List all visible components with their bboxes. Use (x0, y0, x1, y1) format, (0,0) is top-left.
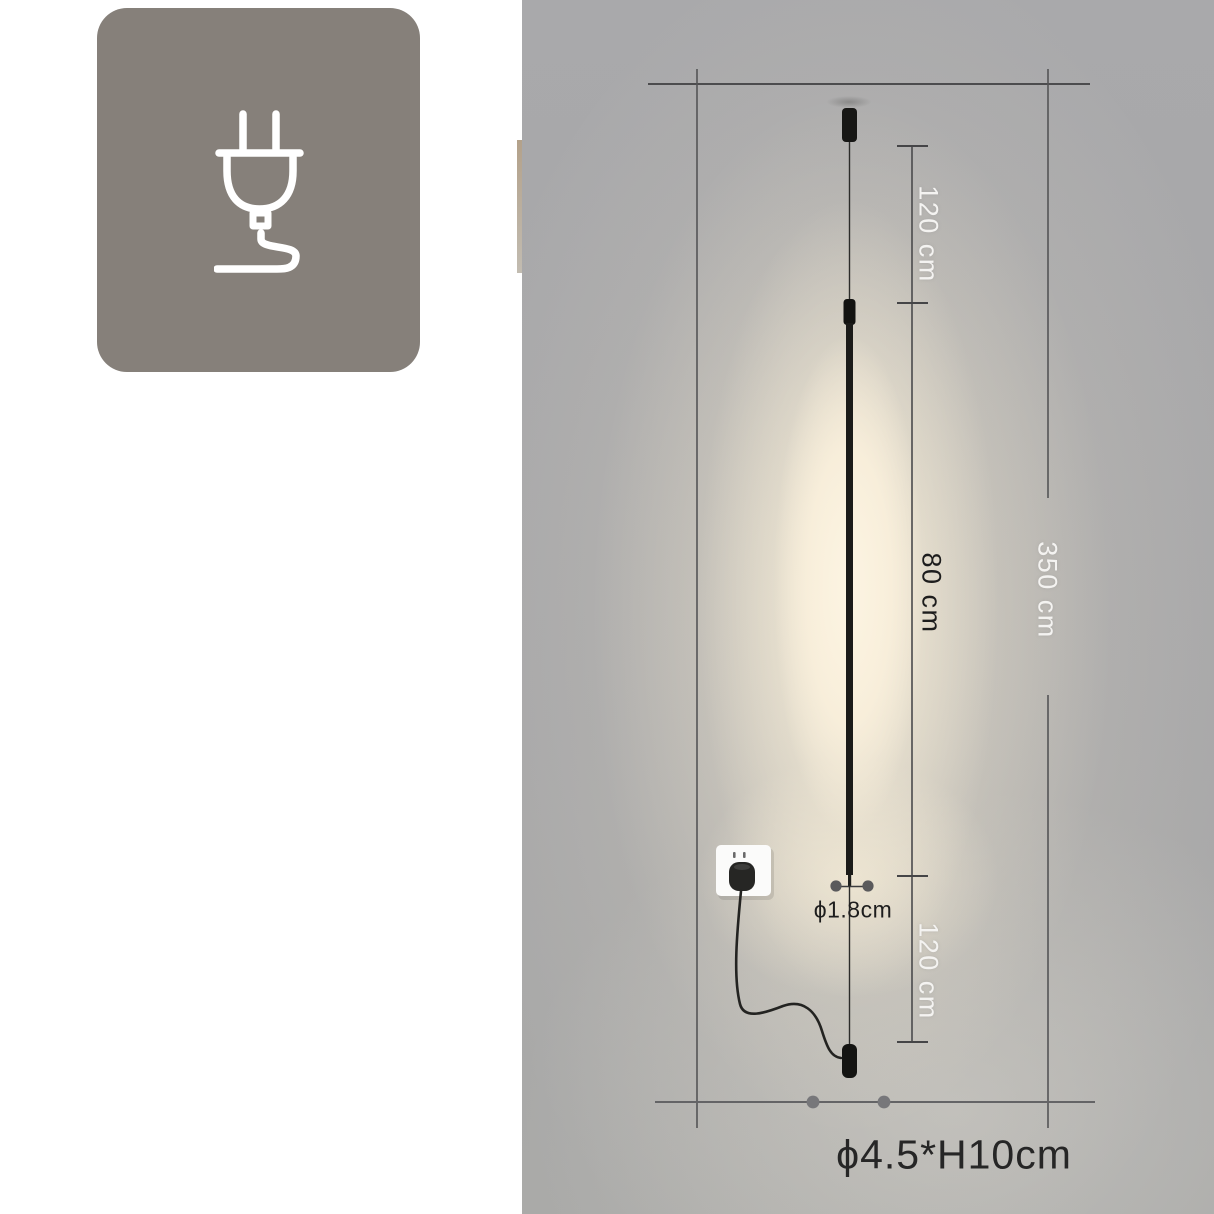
label-total-drop: 350 cm (1034, 541, 1061, 639)
plug-body (227, 157, 293, 209)
rod-tip (848, 875, 851, 886)
rod-connector (844, 299, 856, 325)
plug-feature-badge (97, 8, 420, 372)
floor-marker-dot-right (878, 1096, 891, 1109)
wall-bracket-dot-left (830, 880, 841, 891)
label-upper-drop: 120 cm (915, 185, 942, 283)
floor-marker-dot-left (807, 1096, 820, 1109)
base-cylinder (842, 1044, 857, 1078)
wall-bracket-dot-right (862, 880, 873, 891)
wall-plug-highlight (734, 864, 750, 870)
lamp-dimension-diagram: 120 cm 80 cm 350 cm 120 cm ϕ1.8cm ϕ4.5*H… (522, 0, 1214, 1214)
diagram-linework (522, 0, 1214, 1214)
label-lower-drop: 120 cm (915, 922, 942, 1020)
plug-cord (217, 233, 296, 269)
label-canopy-size: ϕ4.5*H10cm (836, 1135, 1072, 1176)
power-plug-icon (214, 103, 304, 278)
lamp-rod (846, 323, 853, 875)
product-spec-image: 120 cm 80 cm 350 cm 120 cm ϕ1.8cm ϕ4.5*H… (0, 0, 1214, 1214)
label-rod-diameter: ϕ1.8cm (814, 899, 893, 922)
label-lamp-length: 80 cm (918, 552, 945, 633)
plug-neck (253, 213, 268, 226)
outlet-slot-right (743, 852, 746, 858)
outlet-slot-left (733, 852, 736, 858)
ceiling-canopy (842, 108, 857, 142)
